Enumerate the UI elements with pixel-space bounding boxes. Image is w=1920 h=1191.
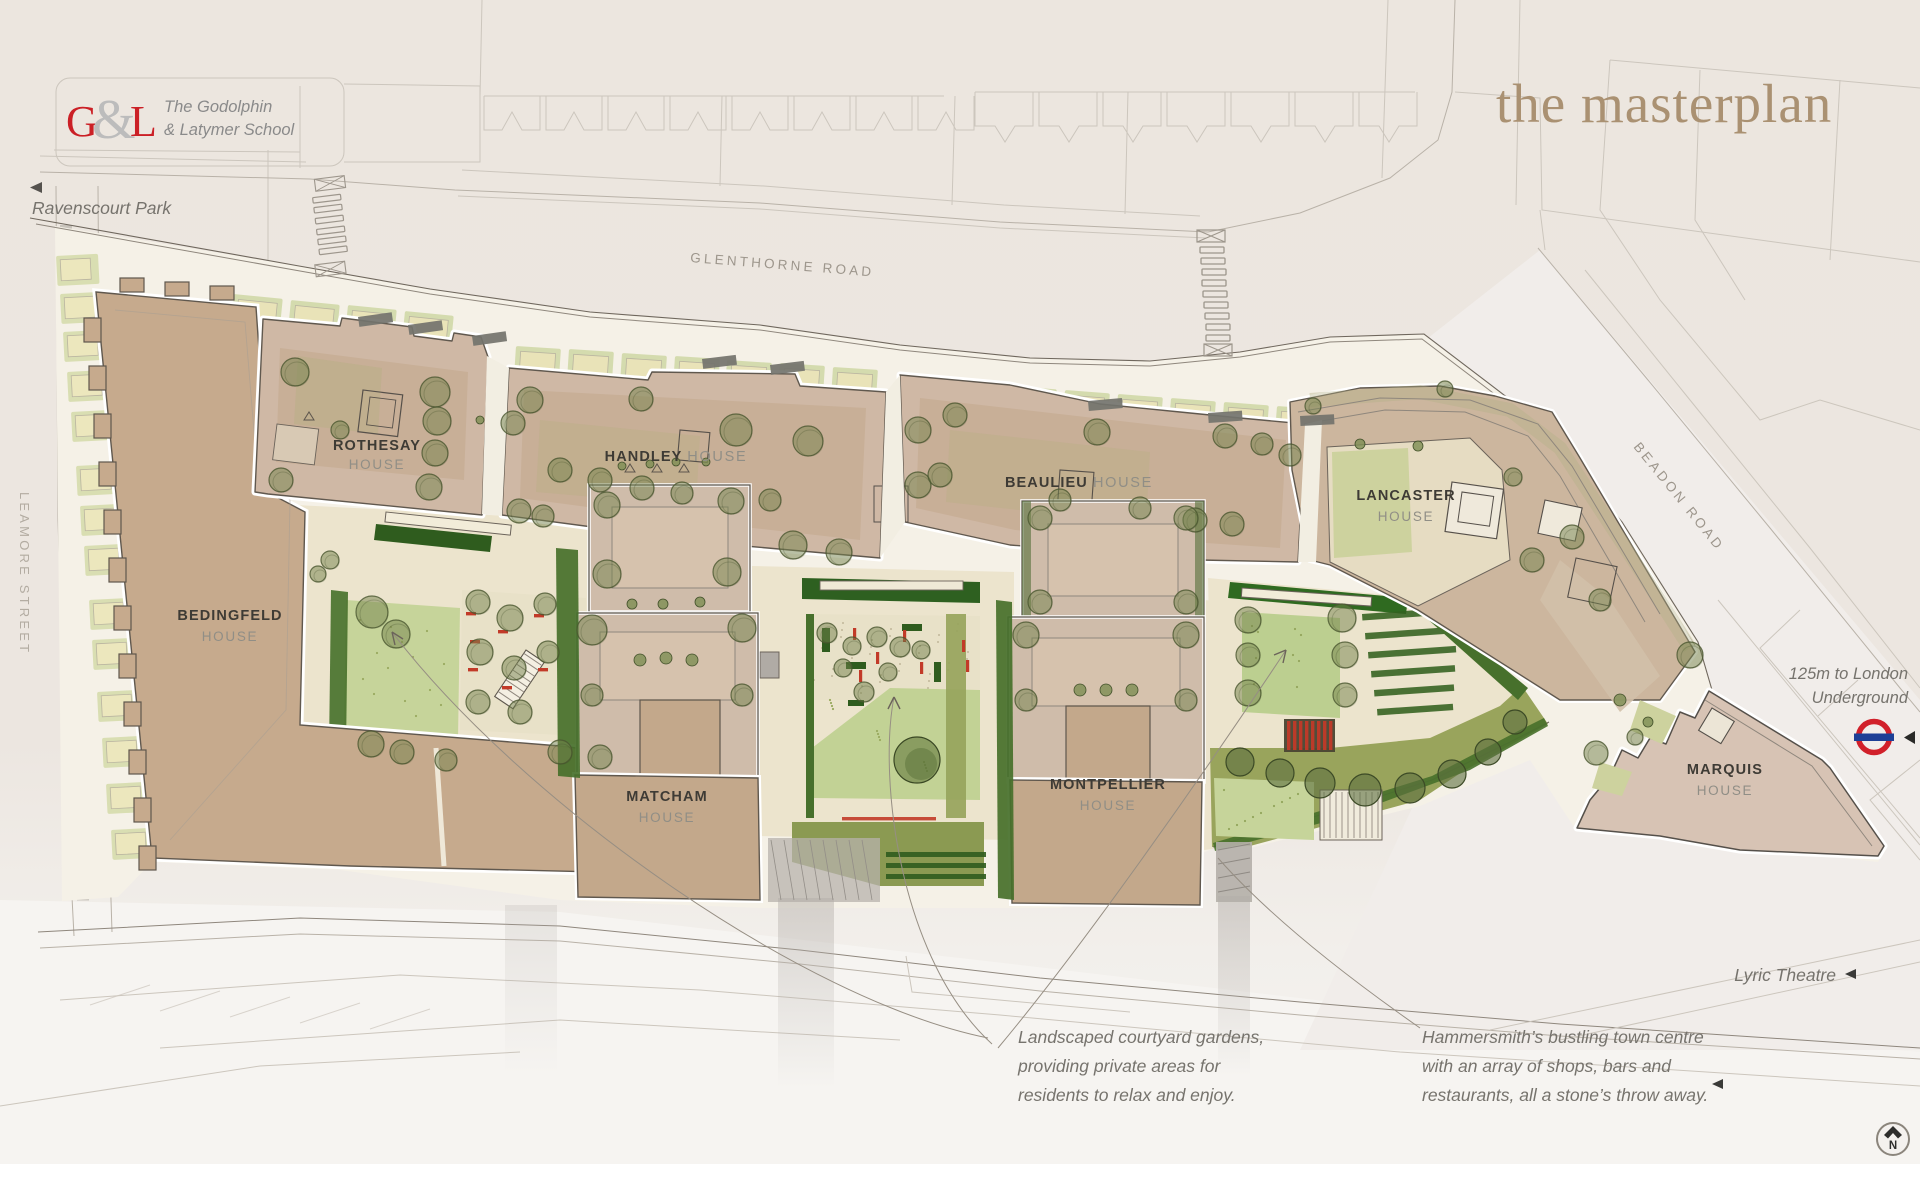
svg-text:HOUSE: HOUSE — [349, 457, 406, 472]
svg-text:Hammersmith’s bustling town ce: Hammersmith’s bustling town centre — [1422, 1027, 1704, 1047]
svg-text:providing private areas for: providing private areas for — [1017, 1056, 1221, 1076]
svg-text:HANDLEY HOUSE: HANDLEY HOUSE — [605, 449, 748, 465]
svg-text:MARQUIS: MARQUIS — [1687, 762, 1763, 778]
svg-text:Ravenscourt Park: Ravenscourt Park — [32, 198, 172, 218]
svg-text:Underground: Underground — [1812, 689, 1909, 707]
svg-text:125m to London: 125m to London — [1789, 665, 1908, 683]
svg-text:BEDINGFELD: BEDINGFELD — [177, 608, 282, 624]
svg-text:HOUSE: HOUSE — [202, 629, 259, 644]
svg-text:BEAULIEU HOUSE: BEAULIEU HOUSE — [1005, 475, 1153, 491]
svg-text:LEAMORE STREET: LEAMORE STREET — [17, 492, 32, 655]
svg-text:the masterplan: the masterplan — [1496, 73, 1832, 134]
svg-text:HOUSE: HOUSE — [639, 810, 696, 825]
svg-text:Landscaped courtyard gardens,: Landscaped courtyard gardens, — [1018, 1027, 1264, 1047]
svg-text:ROTHESAY: ROTHESAY — [333, 438, 421, 454]
svg-text:The Godolphin: The Godolphin — [164, 98, 272, 116]
svg-text:HOUSE: HOUSE — [1697, 783, 1754, 798]
svg-text:LANCASTER: LANCASTER — [1356, 488, 1455, 504]
svg-text:N: N — [1889, 1140, 1897, 1152]
svg-text:& Latymer School: & Latymer School — [164, 121, 296, 139]
svg-text:restaurants, all a stone’s thr: restaurants, all a stone’s throw away. — [1422, 1085, 1708, 1105]
svg-text:MATCHAM: MATCHAM — [626, 789, 708, 805]
svg-text:MONTPELLIER: MONTPELLIER — [1050, 777, 1166, 793]
svg-text:with an array of shops, bars a: with an array of shops, bars and — [1422, 1056, 1672, 1076]
svg-text:L: L — [130, 97, 157, 146]
svg-text:HOUSE: HOUSE — [1378, 509, 1435, 524]
svg-text:residents to relax and enjoy.: residents to relax and enjoy. — [1018, 1085, 1236, 1105]
svg-text:HOUSE: HOUSE — [1080, 798, 1137, 813]
svg-text:Lyric Theatre: Lyric Theatre — [1734, 965, 1836, 985]
